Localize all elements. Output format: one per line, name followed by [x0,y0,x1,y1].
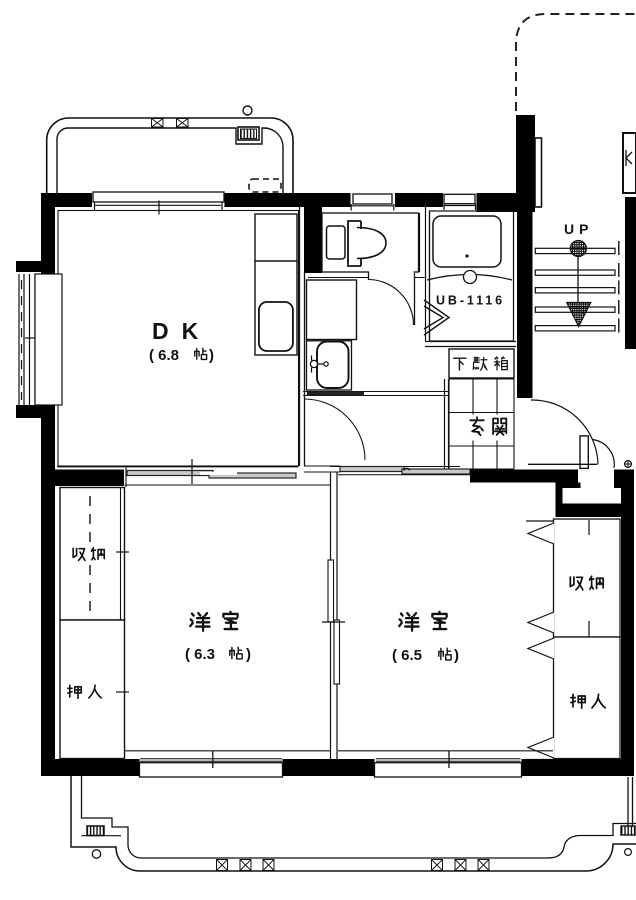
svg-text:): ) [454,647,459,664]
svg-text:( 6.3: ( 6.3 [185,646,215,663]
svg-text:( 6.8: ( 6.8 [149,347,179,364]
svg-text:UP: UP [564,221,593,237]
svg-text:): ) [246,646,251,663]
svg-text:DK: DK [152,318,211,344]
svg-text:( 6.5: ( 6.5 [392,647,422,664]
svg-text:): ) [209,347,214,364]
svg-text:UB-1116: UB-1116 [436,294,505,308]
